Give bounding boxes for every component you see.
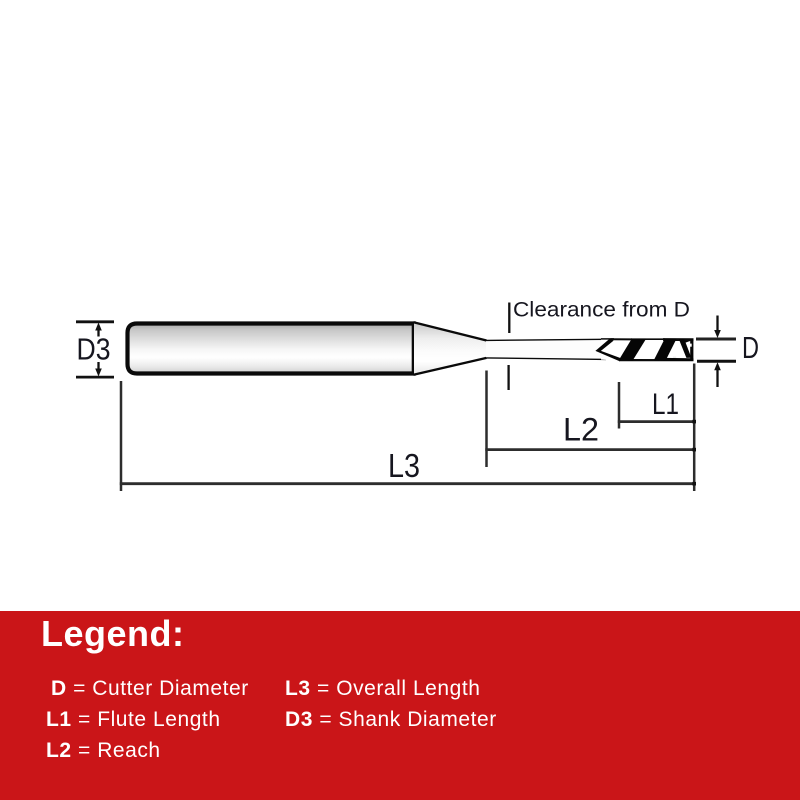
svg-text:Clearance from D: Clearance from D: [513, 299, 690, 322]
svg-text:L3: L3: [388, 447, 420, 484]
svg-text:D3: D3: [77, 332, 111, 367]
svg-text:L1: L1: [652, 388, 679, 421]
svg-text:L2: L2: [563, 412, 599, 448]
svg-text:D: D: [742, 330, 759, 365]
